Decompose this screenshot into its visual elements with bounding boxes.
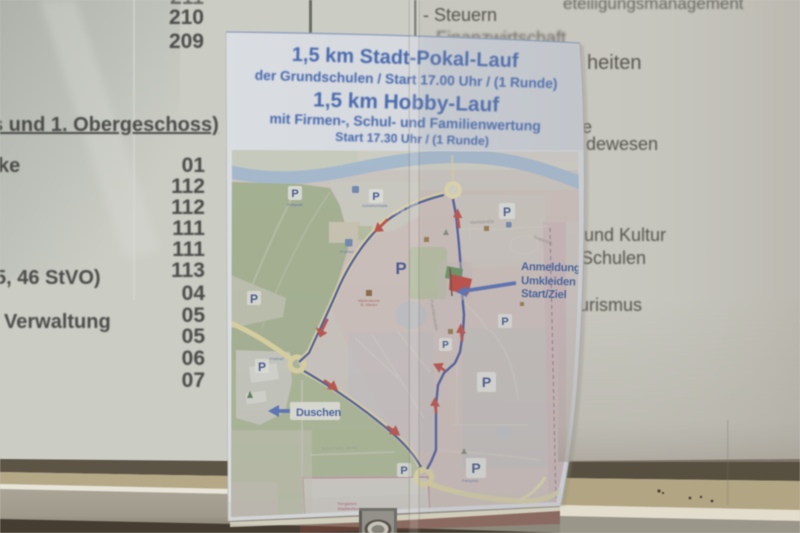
svg-text:06: 06 [182,347,205,370]
svg-text:5, 46 StVO): 5, 46 StVO) [0,267,101,289]
svg-text:111: 111 [172,238,205,261]
svg-text:05: 05 [182,304,206,327]
svg-text:112: 112 [171,175,205,198]
svg-text:113: 113 [171,259,205,282]
svg-text:04: 04 [182,282,206,305]
svg-text:heiten: heiten [587,52,642,74]
svg-text:209: 209 [169,30,204,53]
svg-text:dewesen: dewesen [586,134,658,154]
svg-text:eteiligungsmanagement: eteiligungsmanagement [563,0,744,13]
svg-text:Verwaltung: Verwaltung [4,311,111,333]
svg-text:210: 210 [169,6,204,29]
svg-text:01: 01 [182,154,206,177]
svg-text:05: 05 [182,325,206,348]
svg-text:07: 07 [182,369,205,392]
svg-text:Schulen: Schulen [581,248,646,268]
svg-text:112: 112 [171,196,205,219]
svg-text:- Steuern: - Steuern [423,5,497,25]
svg-text:s und 1. Obergeschoss): s und 1. Obergeschoss) [0,114,219,136]
svg-text:111: 111 [172,217,205,240]
svg-text:ke: ke [0,155,20,177]
svg-text:und Kultur: und Kultur [584,225,666,245]
